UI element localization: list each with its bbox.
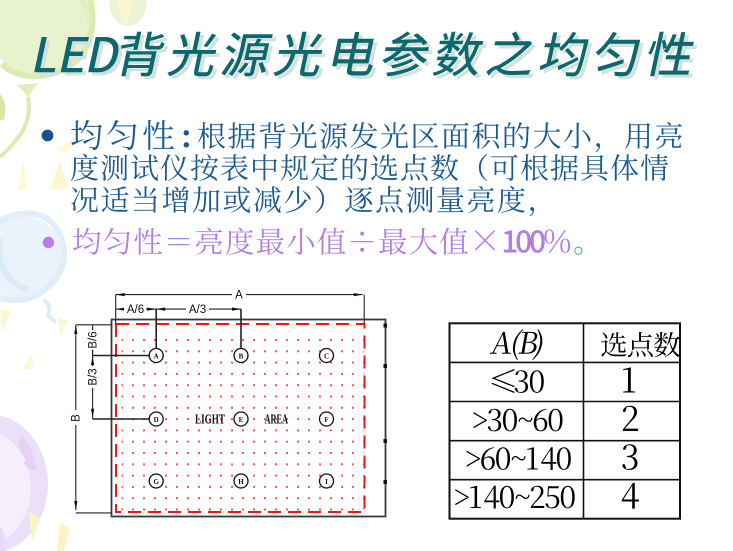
svg-text:A/3: A/3 — [189, 304, 206, 316]
svg-text:H: H — [238, 478, 244, 486]
svg-text:B: B — [71, 414, 83, 422]
svg-text:AREA: AREA — [265, 412, 289, 427]
svg-text:F: F — [324, 416, 328, 424]
svg-text:C: C — [324, 352, 329, 360]
svg-text:LIGHT: LIGHT — [195, 412, 225, 427]
svg-text:G: G — [153, 478, 159, 486]
svg-text:B: B — [239, 352, 244, 360]
svg-text:A: A — [154, 352, 159, 360]
svg-text:A: A — [235, 290, 243, 302]
svg-text:B/6: B/6 — [87, 331, 99, 348]
svg-text:B/3: B/3 — [87, 368, 99, 385]
svg-text:E: E — [239, 416, 244, 424]
svg-text:I: I — [325, 478, 328, 486]
svg-text:A/6: A/6 — [127, 304, 144, 316]
svg-text:D: D — [154, 416, 159, 424]
